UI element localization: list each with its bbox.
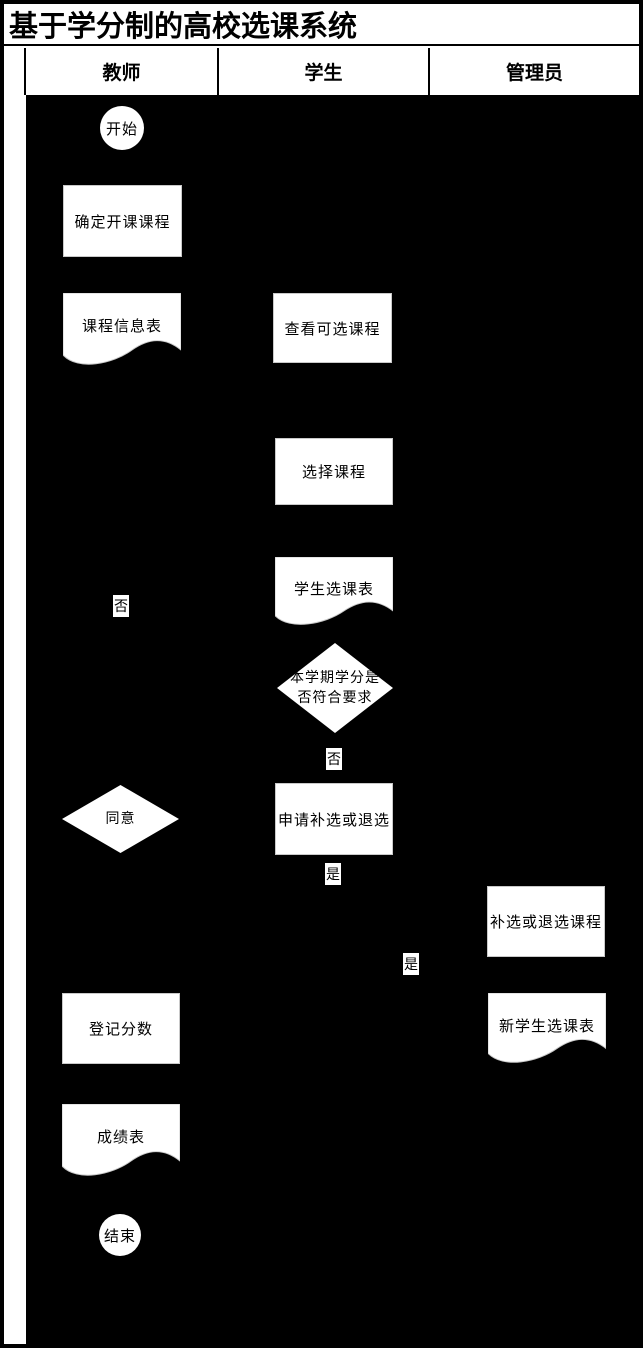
- process-view-available-courses: 查看可选课程: [273, 293, 392, 363]
- edge-label-yes-apply: 是: [325, 863, 341, 885]
- process-register-scores: 登记分数: [62, 993, 180, 1064]
- document-new-student-course-table-label: 新学生选课表: [488, 1015, 606, 1036]
- flowchart-canvas: 开始 确定开课课程 课程信息表 否 同意 登记分数 成绩表 结束: [26, 95, 639, 1344]
- process-register-scores-label: 登记分数: [89, 1018, 153, 1039]
- end-node-label: 结束: [104, 1225, 136, 1246]
- swimlane-header-row: 教师 学生 管理员: [24, 48, 639, 95]
- decision-credit-check-label: 本学期学分是否符合要求: [287, 668, 383, 707]
- process-apply-add-drop: 申请补选或退选: [275, 783, 393, 855]
- lane-header-admin: 管理员: [428, 48, 639, 95]
- lane-header-teacher: 教师: [24, 48, 217, 95]
- edge-label-yes-admin: 是: [403, 953, 419, 975]
- process-determine-courses-label: 确定开课课程: [74, 211, 170, 232]
- start-node: 开始: [100, 106, 144, 150]
- document-student-course-table: 学生选课表: [275, 557, 393, 627]
- decision-agree-label: 同意: [73, 809, 169, 829]
- document-student-course-table-label: 学生选课表: [275, 578, 393, 599]
- document-score-table: 成绩表: [62, 1104, 180, 1178]
- document-course-info-table-label: 课程信息表: [63, 315, 181, 336]
- process-apply-add-drop-label: 申请补选或退选: [278, 809, 390, 830]
- end-node: 结束: [99, 1214, 141, 1256]
- process-add-drop-courses-label: 补选或退选课程: [490, 911, 602, 932]
- diagram-title: 基于学分制的高校选课系统: [9, 3, 357, 45]
- start-node-label: 开始: [106, 118, 138, 139]
- diagram-title-bar: 基于学分制的高校选课系统: [4, 4, 639, 46]
- document-new-student-course-table: 新学生选课表: [488, 993, 606, 1065]
- process-select-courses: 选择课程: [275, 438, 393, 505]
- process-view-available-courses-label: 查看可选课程: [284, 318, 380, 339]
- flowchart-page: 基于学分制的高校选课系统 教师 学生 管理员 开始 确定开课课程 课程信息表 否…: [0, 0, 643, 1348]
- decision-credit-check: 本学期学分是否符合要求: [277, 643, 393, 733]
- decision-agree: 同意: [62, 785, 179, 853]
- process-add-drop-courses: 补选或退选课程: [487, 886, 605, 957]
- document-score-table-label: 成绩表: [62, 1126, 180, 1147]
- lane-header-student: 学生: [217, 48, 428, 95]
- edge-label-no-teacher: 否: [113, 595, 129, 617]
- document-course-info-table: 课程信息表: [63, 293, 181, 367]
- edge-label-no-credit-check: 否: [326, 748, 342, 770]
- process-determine-courses: 确定开课课程: [63, 185, 182, 257]
- process-select-courses-label: 选择课程: [302, 461, 366, 482]
